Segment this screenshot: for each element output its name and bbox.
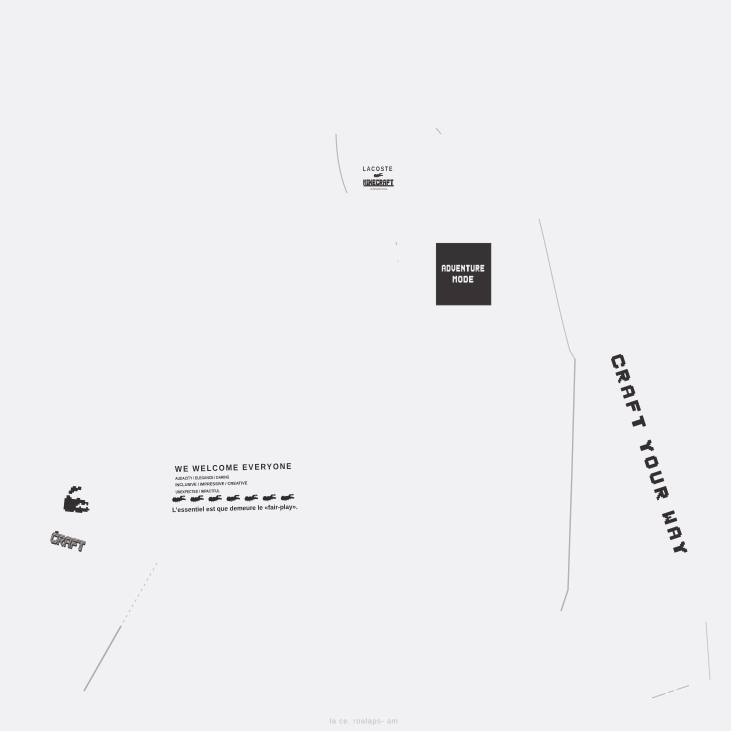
svg-text:la ce. roalaps- am: la ce. roalaps- am xyxy=(330,717,399,726)
svg-text:UN PARTENARIAT OFFICIEL: UN PARTENARIAT OFFICIEL xyxy=(370,188,387,191)
svg-text:LACOSTE: LACOSTE xyxy=(363,166,394,173)
